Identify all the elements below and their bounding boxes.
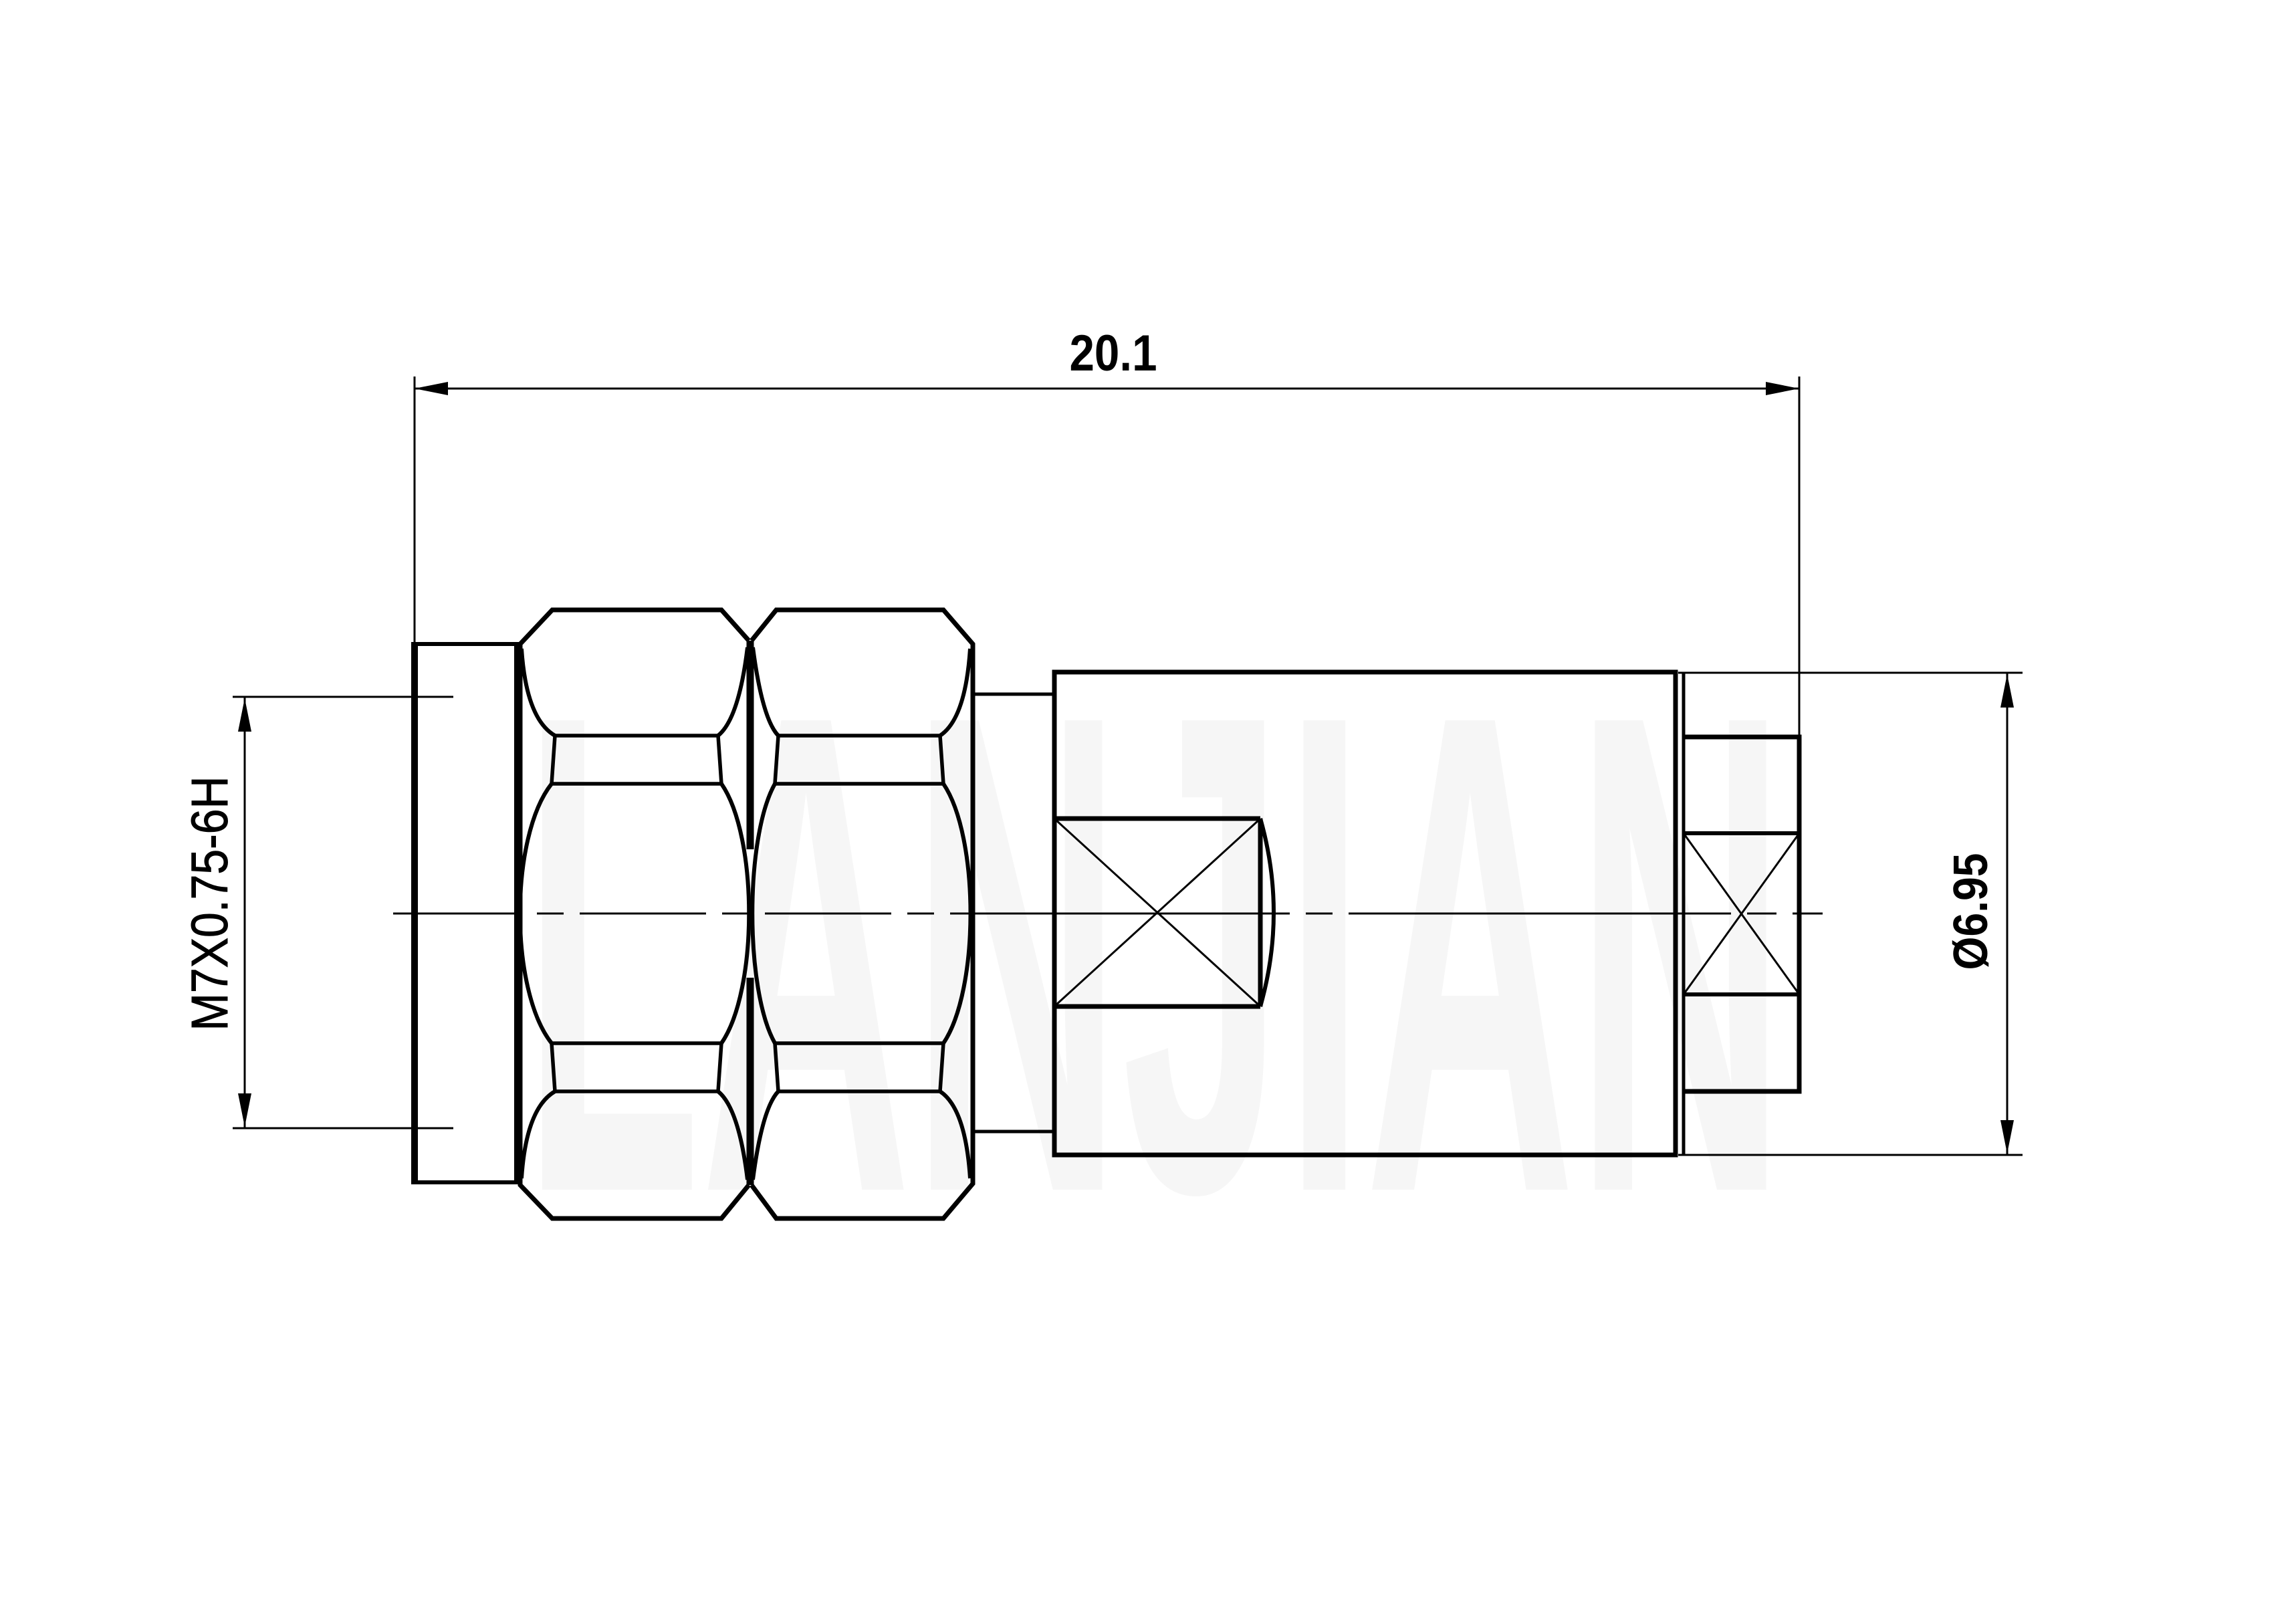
svg-text:M7X0.75-6H: M7X0.75-6H — [181, 776, 239, 1031]
svg-text:20.1: 20.1 — [1070, 325, 1157, 382]
svg-text:Ø6.95: Ø6.95 — [1944, 853, 1998, 970]
